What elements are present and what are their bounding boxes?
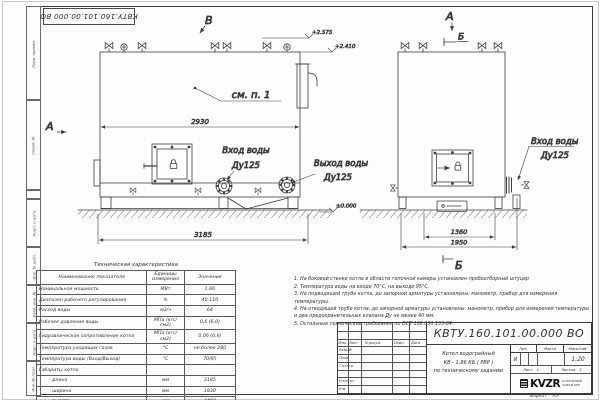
note-item: 2. Температура воды на входе 70°С, на вы… <box>294 284 590 291</box>
title-block: Изм. Лист N докум. Подп. Дата Разраб. Пр… <box>337 322 592 394</box>
inlet-side-label: Вход воды <box>531 137 579 147</box>
see-note-label: см. п. 1 <box>232 90 271 101</box>
side-supports <box>399 197 502 212</box>
tech-table-title: Техническая характеристика <box>36 262 236 268</box>
table-row: Температура уходящих газов°Сне более 280 <box>37 344 236 355</box>
mass-header: Масса <box>537 345 564 353</box>
drawing-sheet: Перв. примен. Справ. № Подп. и дата Инв.… <box>0 0 600 400</box>
lit-header: Лит. <box>511 345 537 353</box>
table-row: Габариты котла <box>37 365 236 376</box>
format-label: ФорматА3 <box>498 393 590 398</box>
title-block-doc-number: КВТУ.160.101.00.000 ВО <box>426 323 591 345</box>
lock-icon <box>455 162 461 170</box>
drain-valve-icon <box>130 188 136 195</box>
inlet-front-label: Вход воды <box>222 146 270 156</box>
air-valve-icon <box>263 43 271 52</box>
inlet-side-size: Ду125 <box>540 151 569 161</box>
row-nkontr: Н.контр. <box>339 379 355 383</box>
elevation-marks: +2.575 +2.410 ±0.000 <box>262 30 357 212</box>
view-callouts: В А А Б Б см. п. 1 <box>45 10 468 272</box>
table-row: Температура воды (Вход/Выход)°С70/95 <box>37 354 236 365</box>
col-list: Лист <box>349 341 358 345</box>
note-item: 4. На отводящей трубе котла, до запорной… <box>294 306 590 320</box>
tech-table-header: Наименование показателя Единицы измерени… <box>37 271 236 285</box>
air-valve-icon <box>138 43 146 52</box>
side-view <box>360 43 529 218</box>
kvzr-logo-icon <box>520 379 528 388</box>
grid-line <box>338 370 426 371</box>
inlet-flange-front <box>216 178 232 194</box>
kvzr-logo-text: KVZR <box>530 378 560 390</box>
air-valve-icon <box>494 43 502 52</box>
table-row: Расход водым3/ч64 <box>37 306 236 317</box>
table-row: Рабочее давление водыМПа (кгс/см2)0,6 (6… <box>37 316 236 330</box>
air-valve-icon <box>223 43 231 52</box>
side-inlet-assembly <box>507 177 529 209</box>
grid-line <box>528 353 529 366</box>
sheets-cell: Листов2 <box>551 366 591 374</box>
sheet-cell: Лист1 <box>511 366 551 374</box>
section-label-b-bottom: Б <box>455 259 463 272</box>
note-item: 3. На подводящей трубе котла, до запорно… <box>294 291 590 305</box>
grid-line <box>520 353 521 366</box>
note-item: 1. На боковой стенке котла в области топ… <box>294 276 590 283</box>
air-valve-icon <box>419 43 427 52</box>
pipe-labels: Вход воды Ду125 Выход воды Ду125 Вход во… <box>222 137 578 183</box>
outlet-flange-front <box>279 177 295 193</box>
lock-icon <box>170 160 177 169</box>
view-label-a-right: А <box>445 10 454 23</box>
view-label-v: В <box>205 14 213 27</box>
ground-hatch <box>360 211 527 219</box>
tech-table: Наименование показателя Единицы измерени… <box>36 270 236 400</box>
section-label-b-top: Б <box>458 33 464 43</box>
technical-notes: 1. На боковой стенке котла в области топ… <box>294 276 590 329</box>
boiler-drawing-canvas: 2930 3185 1360 1950 +2.575 +2.410 ±0.0 <box>0 0 600 272</box>
inlet-front-size: Ду125 <box>231 161 260 171</box>
tech-characteristics: Техническая характеристика Наименование … <box>36 262 236 400</box>
table-row: Гидравлическое сопротивление котлаМПа (к… <box>37 330 236 344</box>
row-prov: Пров. <box>339 356 349 360</box>
lit-value: И <box>511 353 520 366</box>
col-podp: Подп. <box>394 341 405 345</box>
outlet-front-size: Ду125 <box>323 173 352 183</box>
col-doc: N докум. <box>365 341 381 345</box>
grid-line <box>338 346 426 347</box>
gas-duct <box>295 64 317 108</box>
dim-label: 1360 <box>451 228 468 236</box>
table-row: - длинамм3185 <box>37 376 236 387</box>
grid-line <box>338 385 426 386</box>
mass-value <box>537 353 564 366</box>
grid-line <box>409 323 410 393</box>
elevation-label: ±0.000 <box>336 204 357 210</box>
drain-valve-icon <box>255 188 261 195</box>
front-door <box>144 144 192 184</box>
grid-line <box>338 331 426 332</box>
grid-line <box>338 354 426 355</box>
drain-valve-icon <box>195 188 201 195</box>
row-utv: Утв. <box>339 387 346 391</box>
row-razrab: Разраб. <box>339 348 353 352</box>
grid-line <box>361 323 362 393</box>
table-row: - ширинамм1830 <box>37 386 236 397</box>
air-valve-icon <box>105 43 113 52</box>
company-logo: KVZR КОТЕЛЬНЫЙ ЗАВОД РЭП <box>511 374 591 393</box>
table-row: Номинальная мощностьМВт1,86 <box>37 284 236 295</box>
dim-label: 1950 <box>451 239 468 247</box>
view-label-a-left: А <box>45 120 54 133</box>
col-data: Дата <box>411 341 420 345</box>
company-name: КОТЕЛЬНЫЙ ЗАВОД РЭП <box>562 380 582 388</box>
col-izm: Изм. <box>339 341 347 345</box>
grid-line <box>338 377 426 378</box>
grid-line <box>338 339 426 340</box>
vent-icon <box>284 44 290 52</box>
front-view <box>78 43 332 218</box>
elevation-label: +2.410 <box>335 44 356 50</box>
scale-header: Масштаб <box>564 345 591 353</box>
outlet-front-label: Выход воды <box>314 159 368 169</box>
front-supports <box>101 197 298 209</box>
elevation-label: +2.575 <box>312 30 333 36</box>
air-valve-icon <box>211 43 219 52</box>
side-door <box>432 150 473 186</box>
table-row: Диапазон рабочего регулирования%40-110 <box>37 295 236 306</box>
air-valve-icon <box>401 43 409 52</box>
side-drain-valve-icon <box>390 185 398 191</box>
air-valve-icon <box>478 43 486 52</box>
scale-value: 1:20 <box>564 353 591 366</box>
grid-line <box>338 362 426 363</box>
row-tkontr: Т.контр. <box>339 364 354 368</box>
dim-label: 3185 <box>194 231 212 239</box>
dim-label: 2930 <box>191 118 209 126</box>
grid-line <box>392 323 393 393</box>
vent-icon <box>121 44 127 52</box>
ground-hatch <box>78 211 332 219</box>
product-title: Котел водогрейный КВ - 1,86 КБ ( РВР ) п… <box>426 345 511 393</box>
